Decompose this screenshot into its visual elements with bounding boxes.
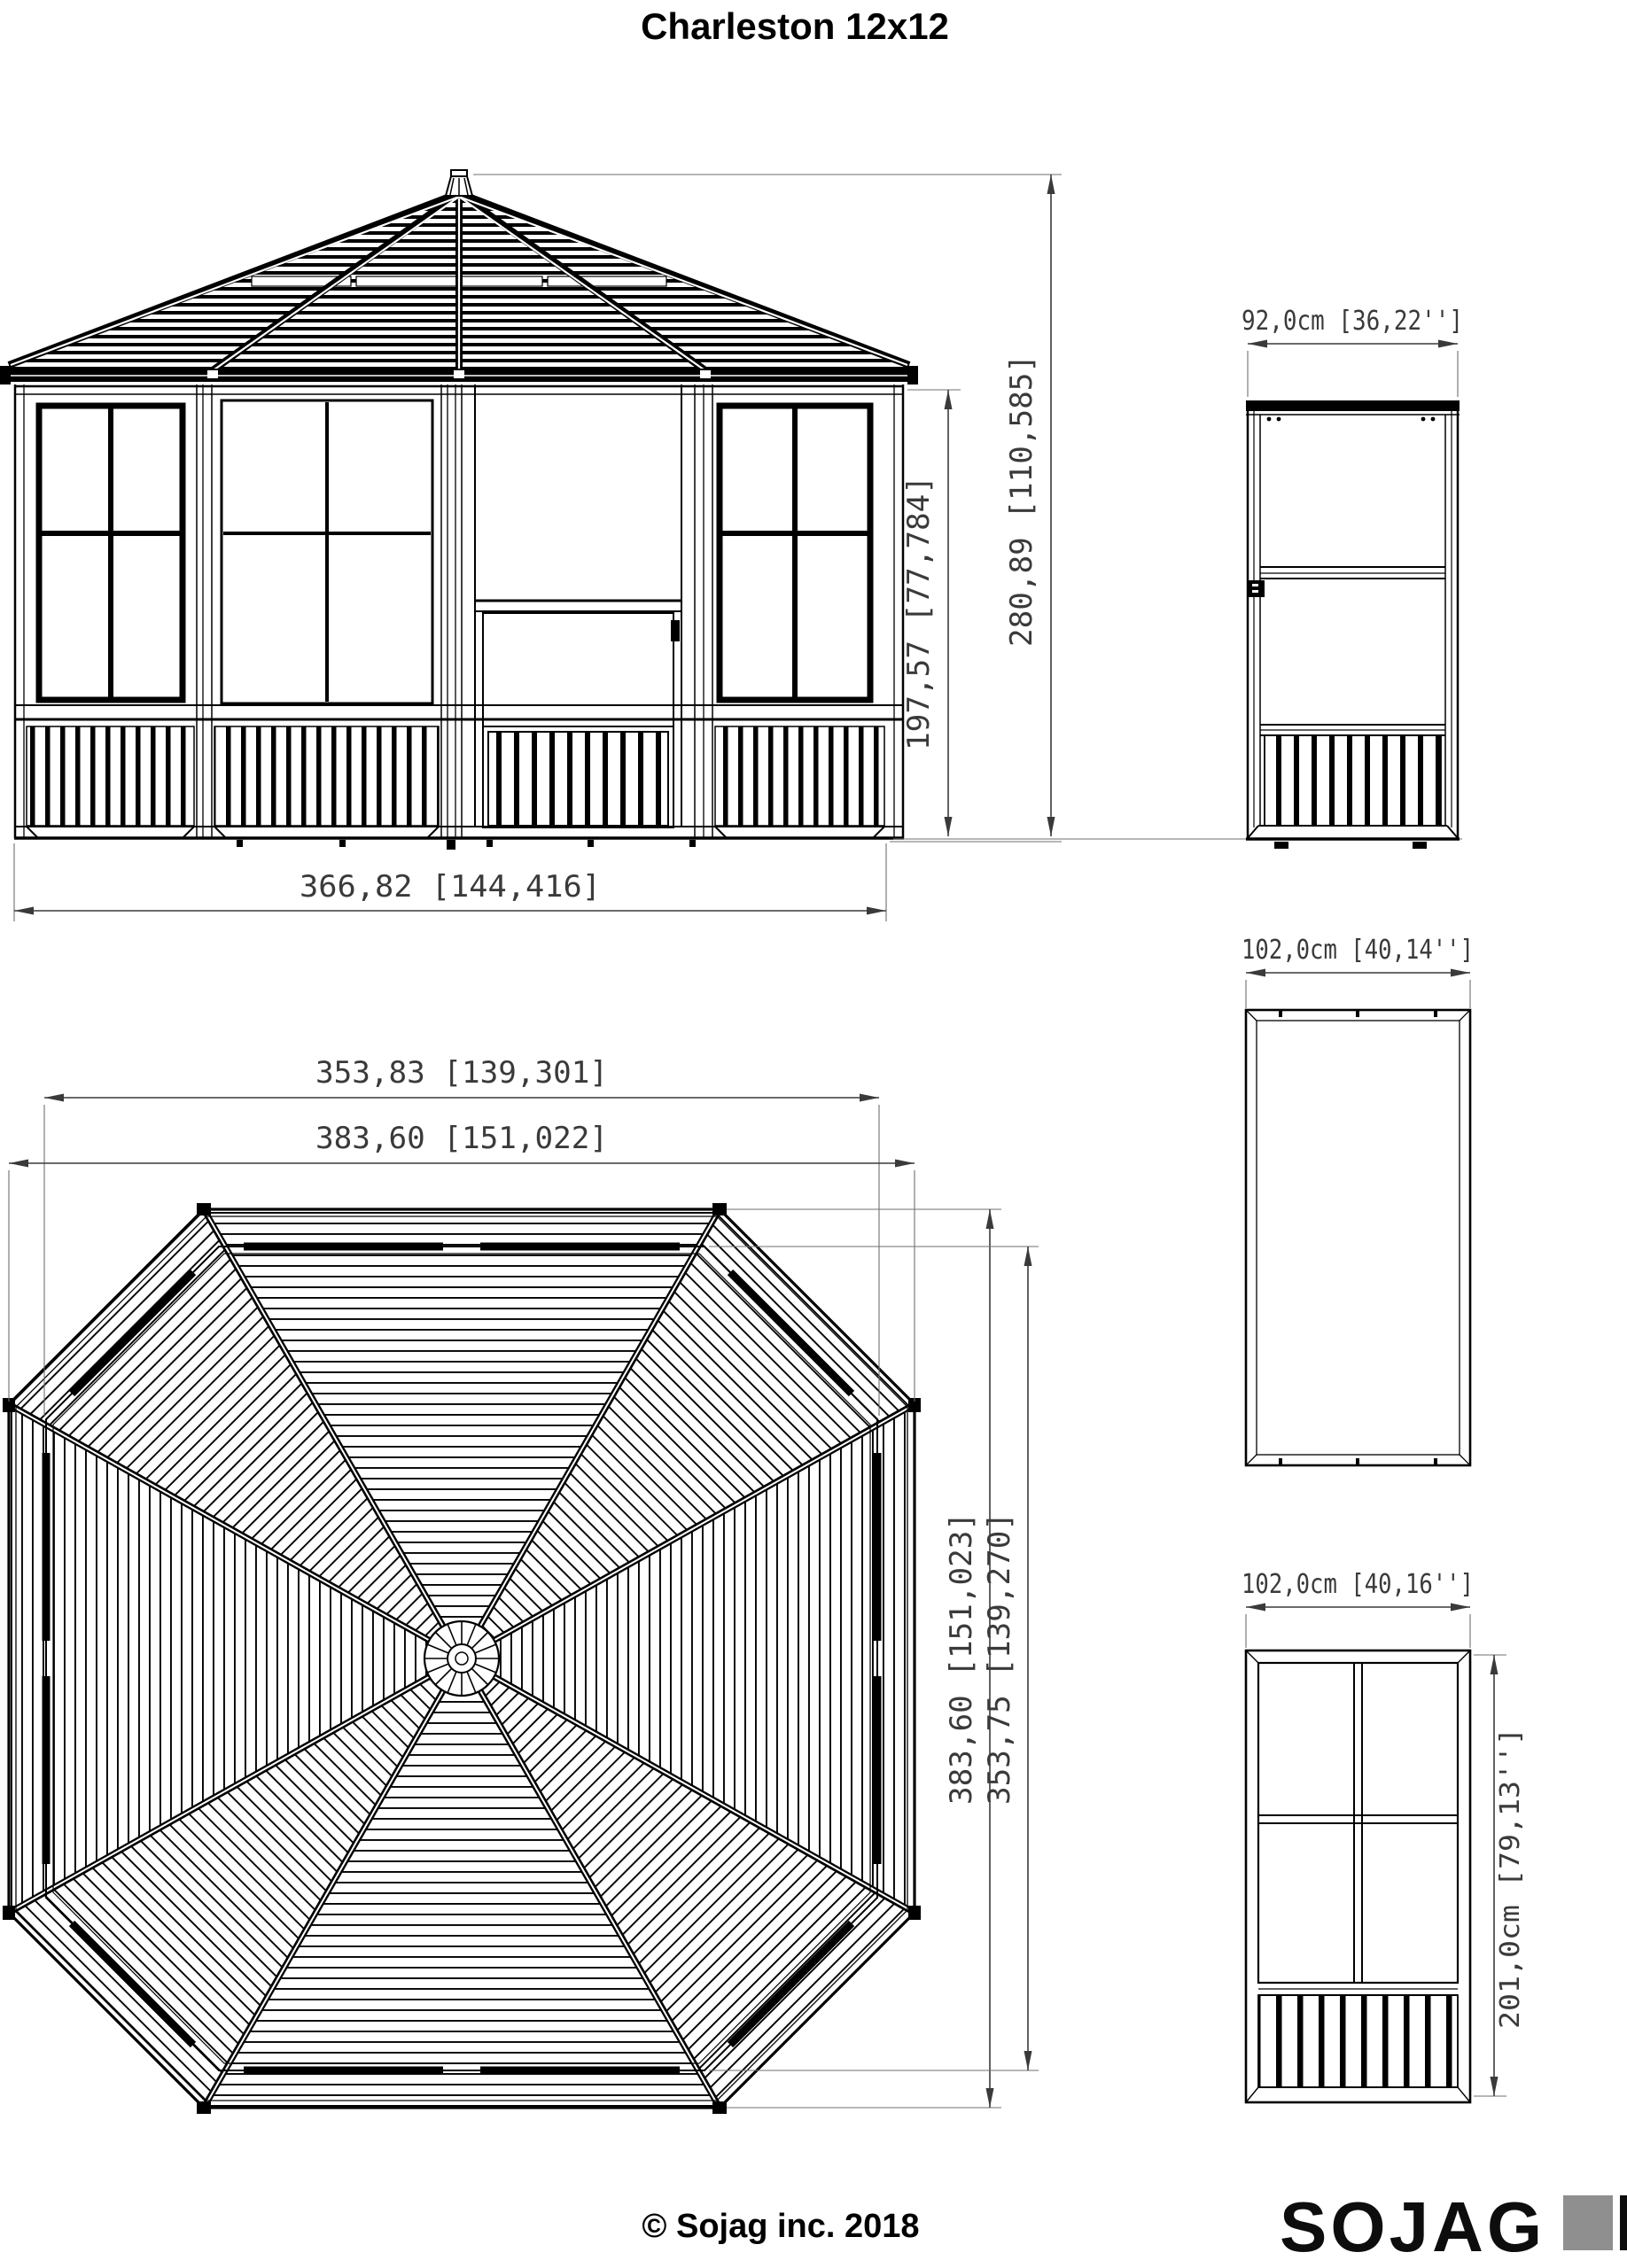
wall-panel-view: 102,0cm [40,16''] 201,0cm [79,13''] [1242, 1569, 1526, 2102]
dim-plan-outer-height: 383,60 [151,023] [944, 1512, 979, 1805]
elevation-roof [0, 170, 918, 384]
page-title: Charleston 12x12 [641, 5, 949, 47]
copyright-text: © Sojag inc. 2018 [642, 2208, 919, 2245]
window-right-angled [720, 406, 870, 700]
roof-finial [446, 170, 472, 196]
dim-door-panel-width: 92,0cm [36,22''] [1242, 306, 1463, 337]
roof-plan-view: 353,83 [139,301] 383,60 [151,022] 383,60… [3, 1055, 1039, 2114]
sojag-logo: SOJAG [1280, 2187, 1627, 2266]
front-elevation-view: 366,82 [144,416] 197,57 [77,784] 280,89 … [0, 170, 1462, 921]
door-panel-view: 92,0cm [36,22''] [1242, 306, 1463, 849]
dim-total-width: 366,82 [144,416] [300, 869, 601, 905]
dim-wall-panel-width: 102,0cm [40,16''] [1242, 1569, 1474, 1600]
elevation-walls [14, 384, 904, 850]
wall-base [14, 827, 904, 850]
window-left [222, 400, 432, 703]
door-handle-icon [671, 620, 680, 641]
roof-panel-view: 102,0cm [40,14''] [1242, 935, 1474, 1465]
door-latch-icon [1249, 580, 1265, 597]
door-skirt-slats [488, 732, 668, 826]
wall-panel-slats [1258, 1995, 1458, 2087]
dim-wall-panel-height: 201,0cm [79,13''] [1495, 1728, 1526, 2029]
center-hub [424, 1621, 499, 1696]
window-left-angled [39, 406, 183, 700]
logo-black-square-icon [1620, 2195, 1627, 2250]
dim-plan-inner-width: 353,83 [139,301] [315, 1055, 608, 1091]
dim-total-height: 280,89 [110,585] [1004, 354, 1039, 647]
door-panel-slats [1265, 735, 1441, 826]
dim-plan-inner-height: 353,75 [139,270] [982, 1512, 1017, 1805]
dim-wall-height: 197,57 [77,784] [901, 476, 937, 750]
dim-plan-outer-width: 383,60 [151,022] [315, 1121, 608, 1156]
sojag-logo-text: SOJAG [1280, 2187, 1545, 2266]
door-panel-base [1246, 826, 1460, 849]
door-opening [475, 384, 681, 827]
dim-roof-panel-width: 102,0cm [40,14''] [1242, 935, 1474, 966]
logo-gray-square-icon [1563, 2195, 1613, 2250]
door-panel-rails [1260, 567, 1445, 735]
footer: © Sojag inc. 2018 SOJAG [642, 2187, 1627, 2266]
drawing-sheet: Charleston 12x12 [0, 0, 1627, 2268]
foot-pads [237, 840, 696, 850]
